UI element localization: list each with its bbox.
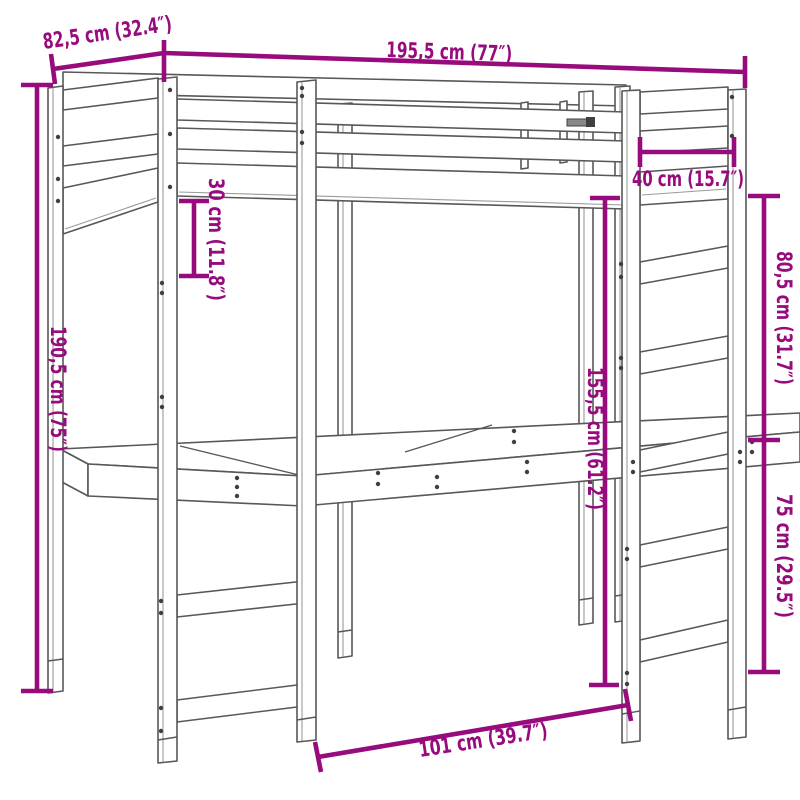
right-end-top-rail — [640, 87, 728, 114]
dimension-label-upper-section-height: 80,5 cm (31.7″) — [771, 251, 796, 385]
dimension-label-desk-opening-width: 101 cm (39.7″) — [417, 719, 549, 763]
ladder-rung — [640, 620, 728, 662]
dimension-label-guard-rail-height: 30 cm (11.8″) — [203, 178, 228, 301]
ladder-rung — [640, 527, 728, 567]
front-left-post — [158, 77, 177, 763]
left-cross-brace — [177, 684, 305, 722]
front-mid-post — [297, 80, 316, 742]
left-end-frame-rail — [63, 168, 158, 234]
loft-bed-dimension-diagram: 82,5 cm (32.4″) 195,5 cm (77″) 190,5 cm … — [0, 0, 800, 800]
dimension-label-bed-length: 195,5 cm (77″) — [386, 38, 513, 67]
back-desk-post — [579, 91, 593, 625]
front-bed-frame-rail — [177, 163, 626, 209]
dimension-label-bed-depth: 82,5 cm (32.4″) — [41, 12, 173, 55]
ladder-rung — [640, 246, 728, 284]
ladder-rung — [640, 336, 728, 374]
left-end-middle-rail — [63, 134, 158, 166]
left-cross-brace — [177, 581, 305, 617]
dimension-desk-opening-width: 101 cm (39.7″) — [315, 689, 631, 772]
dimension-upper-section-height: 80,5 cm (31.7″) — [748, 196, 796, 440]
dimension-label-under-bed-clearance: 155,5 cm (61.2″) — [582, 367, 607, 510]
right-end-middle-rail — [640, 126, 728, 153]
front-middle-rail — [177, 128, 626, 162]
diagram-canvas: 82,5 cm (32.4″) 195,5 cm (77″) 190,5 cm … — [0, 0, 800, 800]
dimension-label-desk-level-height: 75 cm (29.5″) — [771, 494, 796, 618]
latch-detail — [567, 117, 595, 127]
dimension-label-ladder-width: 40 cm (15.7″) — [632, 167, 744, 192]
dimension-label-overall-height: 190,5 cm (75″) — [45, 326, 70, 452]
dimension-desk-level-height: 75 cm (29.5″) — [748, 440, 796, 672]
